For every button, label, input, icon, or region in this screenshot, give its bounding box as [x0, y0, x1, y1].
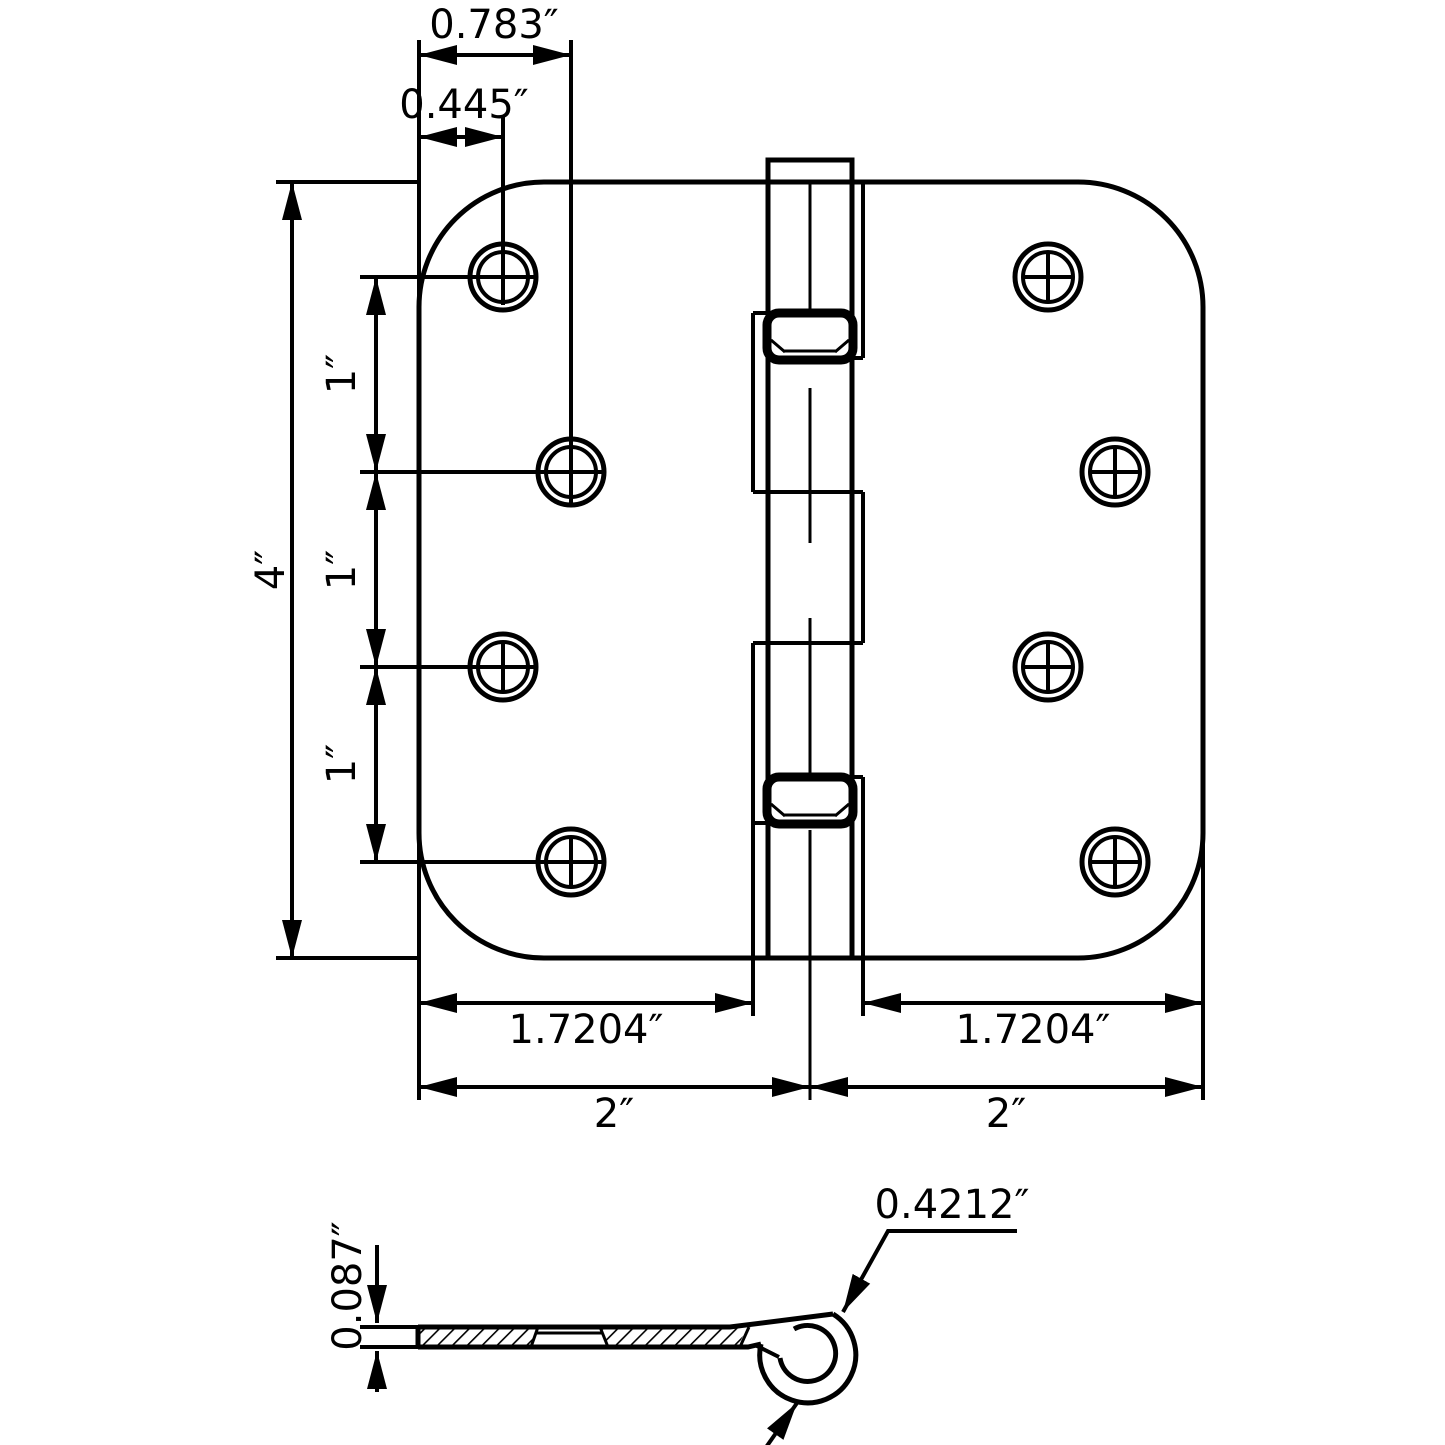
leader-line: [843, 1231, 1017, 1312]
dimension-label: 0.4212″: [875, 1182, 1030, 1228]
lower-leader: [762, 1403, 797, 1445]
screw-holes-right-leaf: [1015, 244, 1148, 895]
dimension-label: 4″: [248, 550, 294, 590]
dimension-label: 0.783″: [429, 2, 558, 48]
leaf-section: [418, 1314, 833, 1347]
screw-hole: [1082, 829, 1148, 895]
section-hatch-area: [601, 1328, 747, 1346]
dimension-label: 1.7204″: [509, 1007, 664, 1053]
dimension-knuckle-diameter: 0.4212″: [843, 1182, 1029, 1312]
dimension-label: 1″: [319, 550, 365, 590]
dimension-label: 1.7204″: [956, 1007, 1111, 1053]
knuckle-inner-curl: [780, 1325, 836, 1381]
bearing-upper: [767, 313, 853, 360]
hinge-technical-drawing-page: 0.783″ 0.445″ 4″ 1″ 1″ 1″: [0, 0, 1445, 1445]
pin-cap: [768, 160, 852, 182]
hinge-top-view: 0.783″ 0.445″ 4″ 1″ 1″ 1″: [248, 2, 1203, 1137]
knuckle-eye: [755, 1314, 856, 1403]
dimension-label: 1″: [319, 354, 365, 394]
dimension-label: 2″: [594, 1091, 634, 1137]
leader-line: [762, 1403, 797, 1445]
dimension-label: 0.445″: [399, 82, 528, 128]
hinge-technical-drawing: 0.783″ 0.445″ 4″ 1″ 1″ 1″: [0, 0, 1445, 1445]
plate-top-edge: [418, 1314, 833, 1327]
screw-hole: [1015, 244, 1081, 310]
dimension-label: 0.087″: [325, 1221, 371, 1350]
bearing-lower: [767, 777, 853, 824]
section-hatch-area: [420, 1328, 537, 1346]
dimension-hole-spacing: 1″ 1″ 1″: [319, 277, 604, 862]
dimension-thickness: 0.087″: [325, 1221, 418, 1392]
screw-hole: [1015, 634, 1081, 700]
screw-holes-left-leaf: [470, 244, 604, 895]
screw-hole: [1082, 439, 1148, 505]
hinge-side-view: 0.087″ 0.4212″: [325, 1182, 1029, 1445]
dimension-label: 2″: [986, 1091, 1026, 1137]
dimension-label: 1″: [319, 744, 365, 784]
